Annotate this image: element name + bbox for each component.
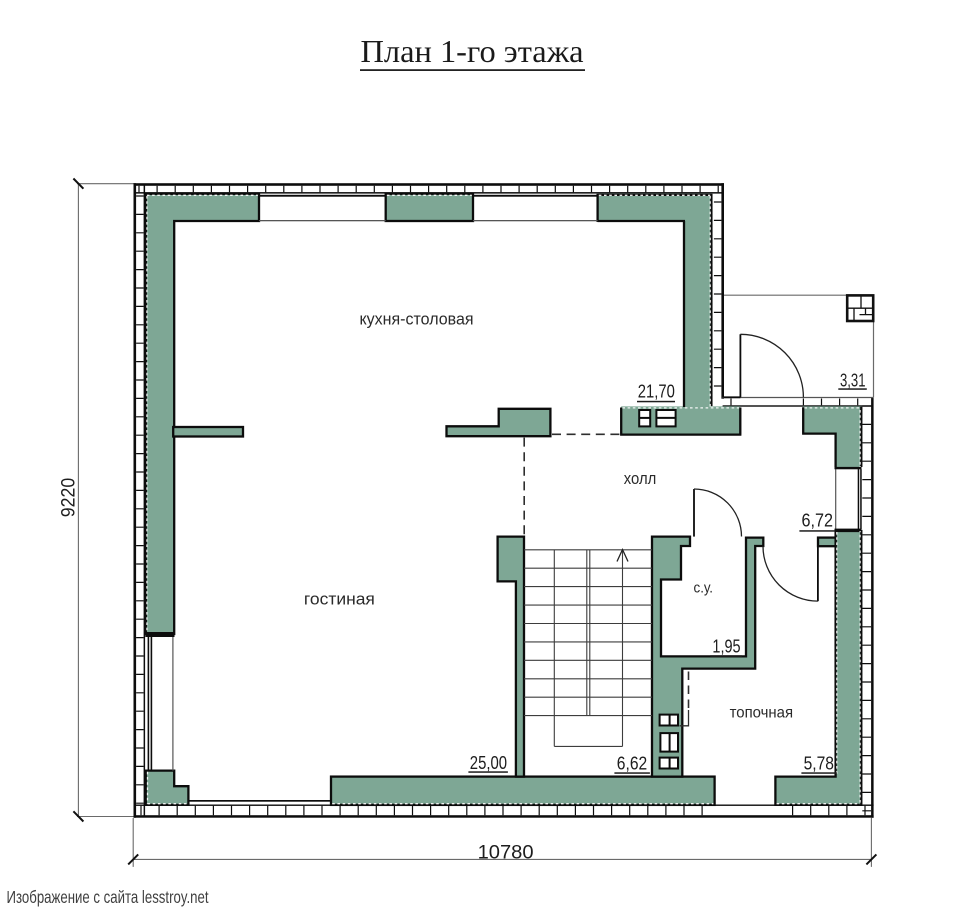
svg-text:6,72: 6,72 bbox=[802, 510, 834, 530]
svg-text:Изображение с сайта lesstroy.n: Изображение с сайта lesstroy.net bbox=[7, 887, 209, 907]
svg-text:1,95: 1,95 bbox=[712, 636, 740, 656]
svg-text:5,78: 5,78 bbox=[804, 754, 834, 774]
svg-text:с.у.: с.у. bbox=[694, 580, 714, 597]
svg-text:21,70: 21,70 bbox=[638, 382, 675, 402]
svg-text:10780: 10780 bbox=[478, 843, 534, 864]
svg-text:топочная: топочная bbox=[730, 705, 794, 722]
svg-text:25,00: 25,00 bbox=[470, 753, 507, 773]
svg-text:3,31: 3,31 bbox=[840, 370, 866, 390]
svg-text:гостиная: гостиная bbox=[304, 590, 375, 609]
svg-text:План 1-го этажа: План 1-го этажа bbox=[361, 33, 584, 69]
svg-text:6,62: 6,62 bbox=[617, 754, 647, 774]
svg-text:кухня-столовая: кухня-столовая bbox=[360, 310, 474, 329]
svg-text:9220: 9220 bbox=[59, 478, 80, 518]
svg-text:холл: холл bbox=[624, 469, 657, 488]
